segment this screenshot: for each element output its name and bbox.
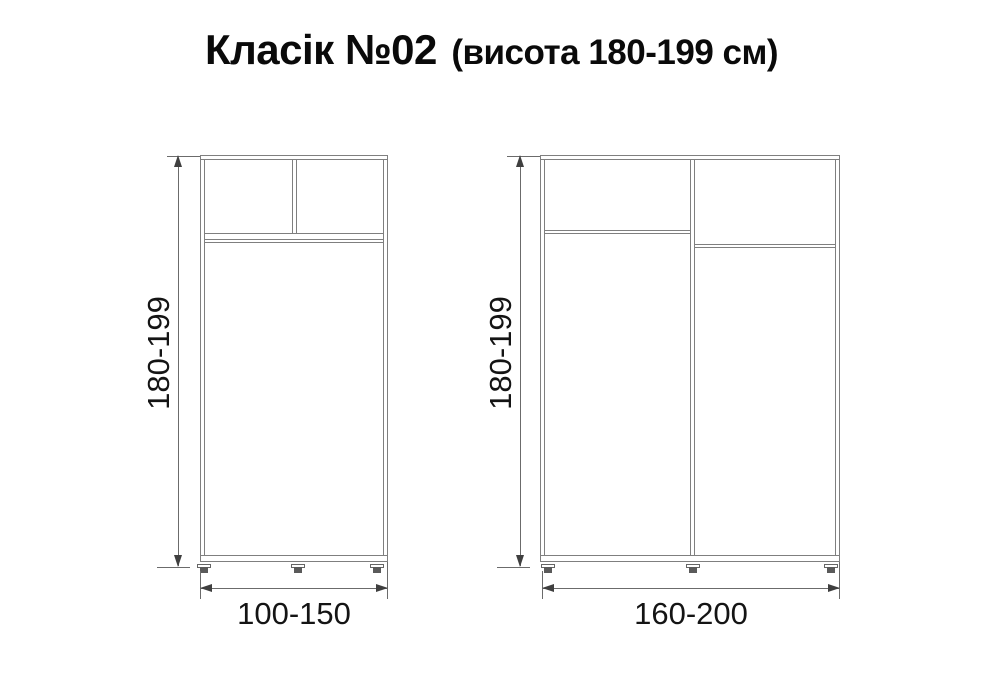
- page-title-sub: (висота 180-199 см): [451, 33, 778, 72]
- large-foot-left: [541, 564, 555, 574]
- arrow-left-icon: [200, 584, 212, 592]
- small-left-panel-inner-line: [204, 159, 205, 555]
- diagram-canvas: Класік №02 (висота 180-199 см) 180-199 1…: [0, 0, 983, 700]
- large-bottom-panel-inner-line: [541, 555, 839, 556]
- large-width-ext-right: [839, 562, 840, 599]
- page-title-main: Класік №02: [205, 26, 437, 73]
- small-width-dimension-line: [201, 588, 387, 589]
- small-foot-right: [370, 564, 384, 574]
- small-right-panel-inner-line: [383, 159, 384, 555]
- large-height-ext-bottom: [497, 567, 530, 568]
- small-height-dimension-line: [178, 158, 179, 566]
- small-width-ext-right: [387, 562, 388, 599]
- arrow-down-icon: [174, 555, 182, 567]
- small-width-label: 100-150: [237, 596, 351, 632]
- arrow-up-icon: [516, 155, 524, 167]
- large-right-panel-inner-line: [835, 159, 836, 555]
- small-foot-center: [291, 564, 305, 574]
- large-height-dimension-line: [520, 158, 521, 566]
- small-shelf: [204, 239, 384, 243]
- large-right-shelf: [695, 244, 835, 248]
- large-left-shelf: [545, 230, 690, 234]
- arrow-right-icon: [376, 584, 388, 592]
- small-upper-compartment-bottom: [204, 233, 384, 234]
- small-height-ext-top: [167, 156, 200, 157]
- arrow-up-icon: [174, 155, 182, 167]
- arrow-down-icon: [516, 555, 524, 567]
- large-foot-center: [686, 564, 700, 574]
- large-foot-right: [824, 564, 838, 574]
- large-width-dimension-line: [543, 588, 839, 589]
- arrow-left-icon: [542, 584, 554, 592]
- large-width-label: 160-200: [634, 596, 748, 632]
- small-height-label: 180-199: [141, 296, 177, 410]
- small-upper-divider: [292, 160, 297, 233]
- large-height-label: 180-199: [483, 296, 519, 410]
- large-center-divider: [690, 159, 695, 555]
- arrow-right-icon: [828, 584, 840, 592]
- small-bottom-panel-inner-line: [201, 555, 387, 556]
- small-height-ext-bottom: [157, 567, 190, 568]
- large-left-panel-inner-line: [544, 159, 545, 555]
- page-title: Класік №02 (висота 180-199 см): [0, 26, 983, 74]
